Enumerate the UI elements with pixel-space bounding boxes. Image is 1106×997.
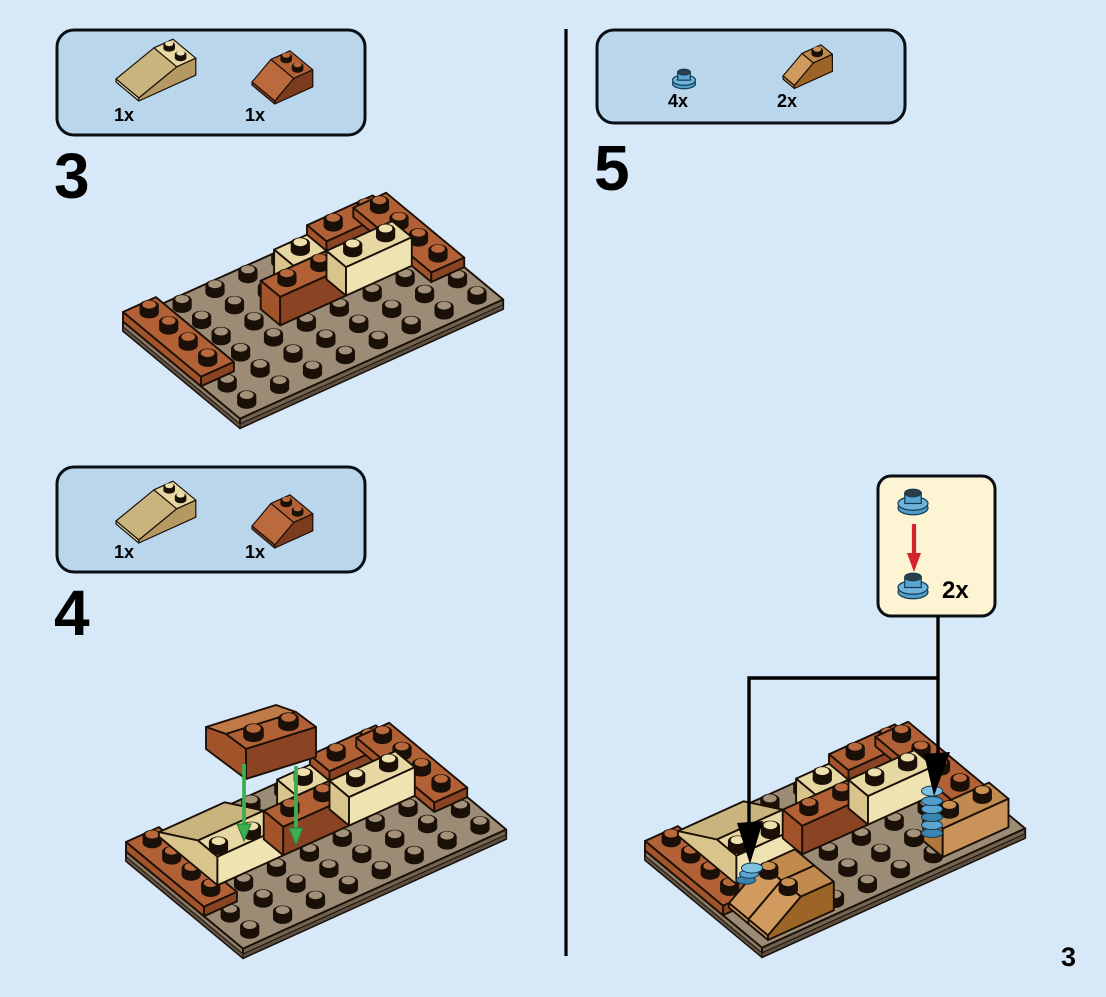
svg-text:2x: 2x: [777, 91, 797, 111]
svg-text:1x: 1x: [114, 105, 134, 125]
svg-text:3: 3: [54, 140, 90, 212]
svg-text:5: 5: [594, 132, 630, 204]
svg-text:1x: 1x: [245, 542, 265, 562]
svg-text:3: 3: [1061, 942, 1076, 972]
svg-text:1x: 1x: [245, 105, 265, 125]
svg-text:4x: 4x: [668, 91, 688, 111]
svg-text:2x: 2x: [942, 577, 969, 604]
svg-text:4: 4: [54, 577, 90, 649]
svg-text:1x: 1x: [114, 542, 134, 562]
